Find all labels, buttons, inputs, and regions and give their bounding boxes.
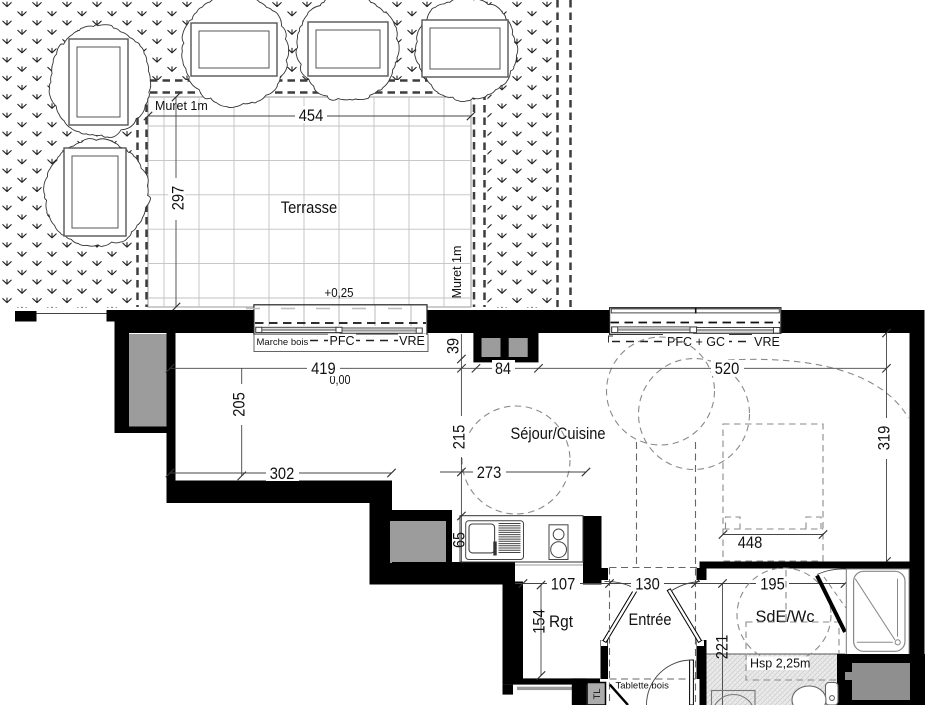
svg-text:Hsp 2,25m: Hsp 2,25m (750, 657, 810, 671)
svg-text:SdE/Wc: SdE/Wc (756, 607, 815, 626)
svg-text:Entrée: Entrée (629, 610, 672, 629)
svg-text:520: 520 (715, 360, 740, 378)
svg-text:195: 195 (760, 576, 785, 594)
svg-text:130: 130 (635, 576, 660, 594)
svg-text:Muret 1m: Muret 1m (155, 99, 208, 113)
svg-text:+0,25: +0,25 (325, 286, 354, 300)
svg-text:Marche bois: Marche bois (257, 337, 309, 348)
svg-text:PFC: PFC (330, 334, 355, 348)
svg-text:448: 448 (738, 534, 763, 552)
svg-text:205: 205 (231, 392, 249, 417)
svg-text:TL: TL (592, 688, 603, 699)
svg-text:Muret 1m: Muret 1m (450, 246, 464, 299)
svg-text:221: 221 (714, 635, 732, 660)
svg-text:107: 107 (551, 576, 576, 594)
svg-text:VRE: VRE (399, 334, 425, 348)
svg-text:419: 419 (311, 360, 336, 378)
svg-text:39: 39 (445, 338, 463, 354)
svg-text:273: 273 (477, 464, 502, 482)
svg-text:84: 84 (495, 360, 511, 378)
svg-text:454: 454 (299, 107, 324, 125)
svg-text:215: 215 (451, 425, 469, 450)
svg-text:Rgt: Rgt (549, 612, 573, 631)
svg-text:297: 297 (170, 186, 188, 211)
svg-text:302: 302 (270, 465, 295, 483)
svg-text:154: 154 (531, 609, 549, 634)
svg-text:Tablette bois: Tablette bois (616, 681, 670, 692)
svg-text:65: 65 (451, 532, 469, 548)
svg-text:319: 319 (876, 426, 894, 451)
svg-text:Terrasse: Terrasse (281, 198, 338, 217)
svg-text:PFC + GC: PFC + GC (667, 335, 725, 349)
svg-text:VRE: VRE (754, 335, 780, 349)
